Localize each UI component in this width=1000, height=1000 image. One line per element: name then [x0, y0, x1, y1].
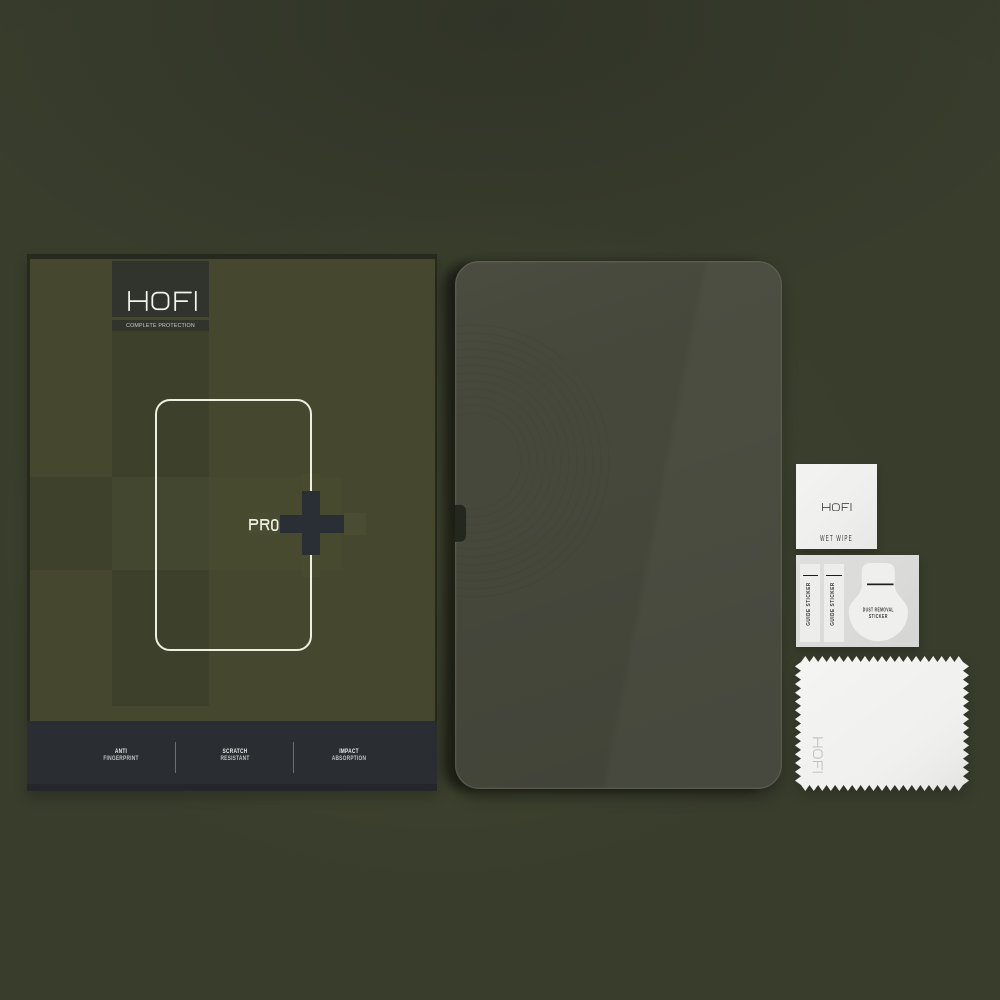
svg-text:STICKER: STICKER — [869, 614, 888, 620]
svg-text:DUST REMOVAL: DUST REMOVAL — [863, 608, 894, 614]
